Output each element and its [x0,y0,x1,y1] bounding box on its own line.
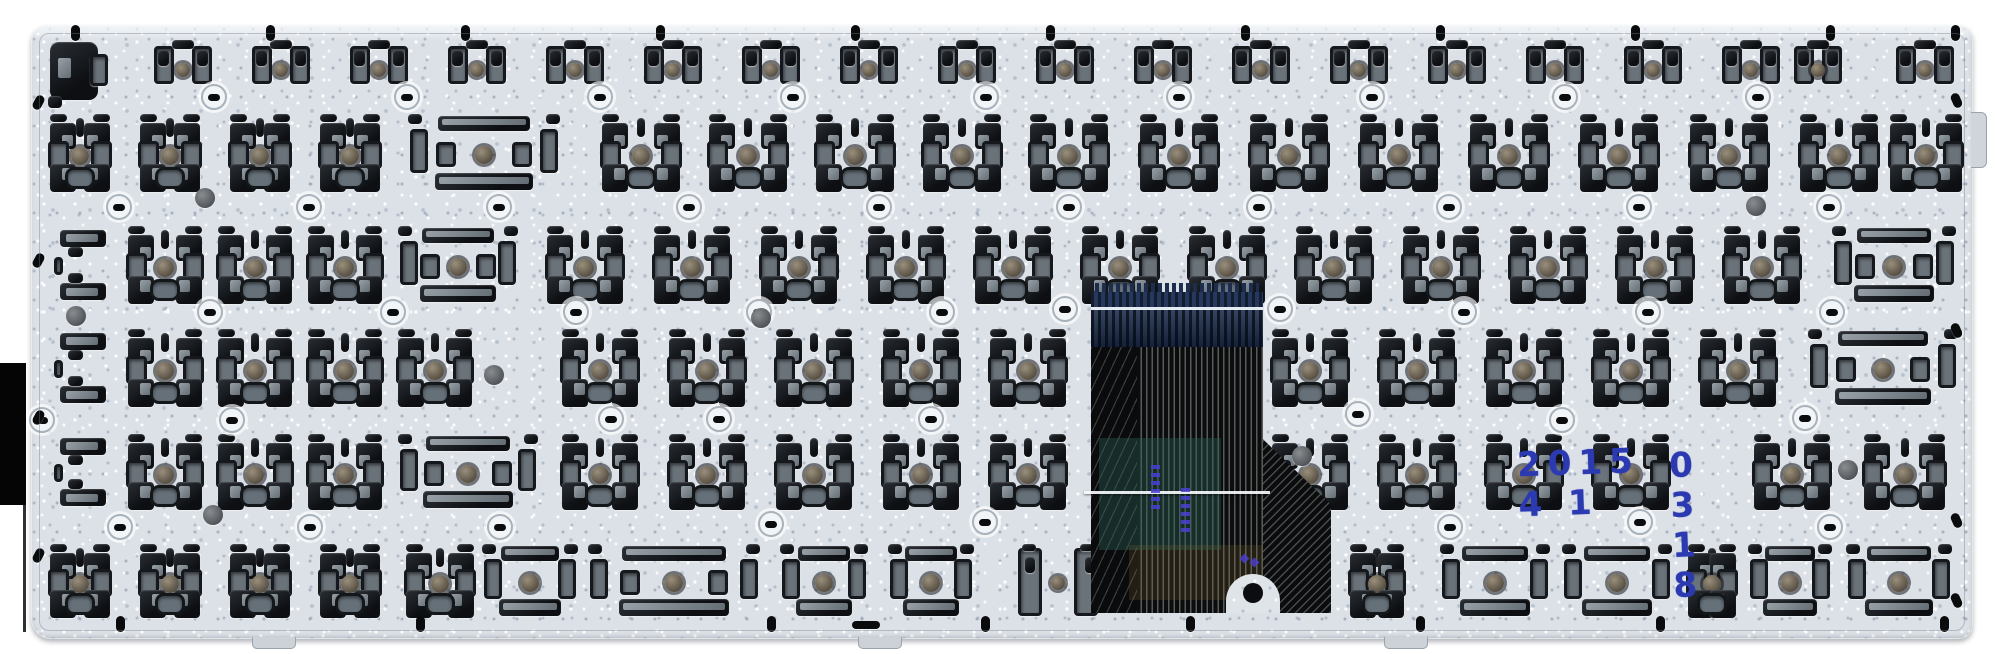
center-hole [862,63,876,77]
mount-slot [1690,164,1716,192]
rivet-dot [1292,446,1312,466]
key-mount-cluster [866,226,946,306]
mount-slot [1753,383,1764,395]
mount-slot [1751,114,1768,122]
mount-slot [1640,279,1670,301]
mount-slot [58,58,71,78]
mount-slot [1632,164,1658,192]
mount-slot [810,333,818,352]
mount-slot [663,114,680,122]
mount-slot [681,486,692,498]
mount-slot [709,164,735,192]
key-mount-cluster [1228,40,1294,90]
mount-slot [1522,164,1548,192]
mount-slot [1296,226,1313,234]
mount-slot [708,570,728,595]
mount-slot [1890,485,1920,507]
mount-slot [275,434,292,442]
mount-slot [744,118,752,137]
mount-slot [1745,168,1756,180]
mount-slot [1593,329,1610,337]
edge-hole [656,25,665,41]
key-mount-cluster [560,434,640,512]
screw-boss-slot [204,309,216,316]
mount-slot [155,167,185,189]
mount-slot [68,350,83,360]
key-mount-cluster [126,329,204,409]
mount-slot [158,50,169,66]
mount-slot [1750,559,1768,599]
mount-slot [1498,486,1509,498]
mount-slot [780,544,794,554]
key-mount-cluster [1591,329,1671,409]
screw-boss-ring [758,511,784,537]
mount-slot [596,438,604,457]
mount-slot [498,241,516,285]
mount-slot [784,279,814,301]
mount-slot [728,329,745,337]
mount-slot [155,593,185,615]
screw-boss-ring [297,514,323,540]
screw-boss-ring [1246,194,1272,220]
mount-slot [504,226,518,236]
key-mount-cluster [888,544,974,620]
date-stamp-right: 0 3 1 8 [1669,445,1710,606]
mount-slot [782,559,800,599]
screw-boss-ring [487,514,513,540]
rivet-dot [1746,196,1766,216]
mount-slot [1302,164,1328,192]
mount-slot [1812,559,1830,599]
mount-slot [1250,114,1267,122]
ribbon-print-mark [1181,488,1190,534]
rivet-dot [195,188,215,208]
mount-slot [1939,50,1950,66]
mount-slot [256,118,264,137]
key-mount-cluster [138,114,202,194]
mount-slot [1842,334,1924,340]
mount-slot [1938,344,1956,388]
mount-slot [1725,118,1733,137]
mount-slot [491,50,502,66]
mount-slot [1592,168,1603,180]
mount-slot [406,544,423,552]
mount-slot [1564,559,1582,599]
mount-slot [1846,544,1860,554]
mount-slot [50,544,67,552]
mount-slot [256,548,264,567]
mount-slot [66,234,98,242]
screw-boss-slot [1824,524,1836,531]
mount-slot [93,544,110,552]
mount-slot [128,226,145,234]
mount-slot [1013,382,1043,404]
mount-slot [150,382,180,404]
edge-hole [266,25,275,41]
mount-slot [1308,280,1319,292]
edge-hole [116,616,125,632]
mount-slot [933,482,959,510]
mount-slot [65,593,95,615]
center-hole [897,259,915,277]
mount-slot [423,491,513,508]
mount-slot [883,434,900,442]
mount-slot [1774,276,1800,304]
key-mount-cluster [738,40,804,90]
center-hole [1156,63,1170,77]
key-mount-cluster [1688,114,1770,194]
key-mount-cluster [1440,544,1550,620]
mount-slot [773,280,784,292]
center-hole [1874,361,1892,379]
mount-slot [802,549,847,555]
mount-slot [562,434,579,442]
mount-slot [1432,486,1443,498]
mount-slot [935,168,946,180]
mount-slot [883,329,900,337]
mount-slot [1040,379,1066,407]
mount-slot [574,486,585,498]
mount-slot [1360,164,1386,192]
mount-slot [438,116,529,131]
mount-slot [1350,544,1367,552]
mount-slot [66,288,98,296]
key-mount-cluster [667,329,747,409]
mount-slot [1855,254,1875,279]
mount-slot [1009,230,1017,249]
mount-slot [335,593,365,615]
mount-slot [1274,167,1304,189]
edge-hole [1436,25,1445,41]
mount-slot [505,549,555,555]
key-mount-cluster [1698,329,1778,409]
key-mount-cluster [973,226,1053,306]
mount-slot [1867,546,1931,561]
mount-slot [128,434,145,442]
mount-slot [1646,383,1657,395]
mount-slot [1482,168,1493,180]
mount-slot [1871,549,1927,555]
mount-slot [439,177,528,184]
mount-slot [1852,164,1878,192]
mount-slot [330,279,360,301]
mount-slot [449,383,460,395]
mount-slot [550,50,561,66]
screw-boss-ring [1437,514,1463,540]
mount-slot [295,50,306,66]
mount-slot [1464,603,1526,610]
mount-slot [612,379,638,407]
mount-slot [1360,114,1377,122]
mount-slot [1275,50,1286,66]
key-mount-cluster [228,114,292,194]
mount-slot [76,118,84,137]
mount-slot [60,489,106,506]
mount-slot [1429,379,1455,407]
mount-slot [1748,544,1762,554]
key-mount-cluster [1798,114,1880,194]
mount-slot [811,276,837,304]
mount-slot [1766,486,1777,498]
mount-slot [179,383,190,395]
edge-hole [31,252,46,269]
mount-slot [1798,50,1809,66]
center-hole [912,362,930,380]
mount-slot [1325,486,1336,498]
mount-slot [1584,546,1650,561]
mount-slot [269,383,280,395]
mount-slot [570,279,600,301]
mount-slot [1900,50,1911,66]
mount-slot [602,164,628,192]
left-edge-shadow [23,505,26,632]
mount-slot [48,96,62,108]
screw-boss-ring [197,299,223,325]
mount-slot [1642,40,1664,49]
key-mount-cluster [126,434,204,512]
mount-slot [66,494,98,502]
key-mount-cluster [398,434,538,512]
mount-slot [1536,379,1562,407]
mount-slot [600,280,611,292]
center-hole [1918,63,1932,77]
mount-slot [1415,168,1426,180]
center-hole [960,63,974,77]
screw-boss-ring [1056,194,1082,220]
screw-boss-slot [494,524,506,531]
key-mount-cluster [1832,226,1956,306]
mount-slot [954,559,972,599]
rivet-dot [484,365,504,385]
mount-slot [1509,382,1539,404]
mount-slot [703,438,711,457]
mount-slot [1861,231,1927,237]
edge-hole [1949,512,1963,529]
mount-slot [1362,593,1392,615]
mount-slot [1857,228,1931,243]
mount-slot [1531,114,1548,122]
mount-slot [1932,559,1950,599]
mount-slot [1192,164,1218,192]
mount-slot [230,544,247,552]
screw-boss-slot [1253,204,1265,211]
mount-slot [1349,280,1360,292]
mount-slot [1586,603,1648,610]
center-hole [591,466,609,484]
center-hole [470,63,484,77]
center-hole [1408,362,1426,380]
mount-slot [269,280,280,292]
key-mount-cluster [1326,40,1392,90]
mount-slot [906,485,936,507]
screw-boss-ring [973,84,999,110]
mount-slot [1091,114,1108,122]
screw-boss-slot [1752,94,1764,101]
mount-slot [1322,379,1348,407]
mount-slot [728,434,745,442]
mount-slot [1652,329,1669,337]
key-mount-cluster [126,226,204,306]
mount-slot [1615,118,1623,137]
mount-slot [669,434,686,442]
ribbon-tint-overlay [1099,438,1221,550]
mount-slot [161,438,169,457]
mount-slot [1440,544,1454,554]
mount-slot [981,50,992,66]
mount-slot [1628,50,1639,66]
mount-slot [1658,544,1672,554]
key-mount-cluster [1377,434,1457,512]
mount-slot [476,254,496,279]
mount-slot [1839,392,1927,399]
center-hole [1896,466,1914,484]
mount-slot [1013,485,1043,507]
center-hole [246,466,264,484]
mount-slot [240,382,270,404]
mount-slot [60,230,106,247]
mounting-tab [858,637,902,649]
key-mount-cluster [1424,40,1490,90]
mount-slot [269,486,280,498]
key-mount-cluster [54,329,112,409]
mount-slot [942,434,959,442]
mount-slot [719,379,745,407]
mount-slot [1627,333,1635,352]
center-hole [341,147,359,165]
mount-slot [978,168,989,180]
center-hole [632,147,650,165]
mount-slot [218,434,235,442]
center-hole [922,574,940,592]
mount-slot [776,329,793,337]
mount-slot [76,548,84,567]
rivet-dot [66,306,86,326]
mount-slot [1652,559,1670,599]
center-hole [1408,466,1426,484]
mount-slot [1562,544,1576,554]
screw-boss-ring [394,84,420,110]
center-hole [790,259,808,277]
mount-slot [795,230,803,249]
key-mount-cluster [774,329,854,409]
mount-slot [54,464,63,482]
mount-slot [840,167,870,189]
mount-slot [1331,434,1348,442]
mount-slot [161,230,169,249]
mount-slot [1629,280,1640,292]
center-hole [805,466,823,484]
edge-hole [416,616,425,632]
center-hole [336,362,354,380]
screw-boss-ring [1166,84,1192,110]
mount-slot [1676,226,1693,234]
mount-slot [704,276,730,304]
mount-slot [1432,50,1443,66]
mount-slot [359,383,370,395]
mount-slot [581,230,589,249]
mount-slot [1054,40,1076,49]
mount-slot [770,114,787,122]
rivet-dot [1838,460,1858,480]
mount-slot [1025,276,1051,304]
mount-slot [848,559,866,599]
mount-slot [1164,167,1194,189]
center-hole [156,466,174,484]
key-mount-cluster [1130,40,1196,90]
key-mount-cluster [881,329,961,409]
key-mount-cluster [1846,544,1952,620]
mount-slot [733,167,763,189]
mount-slot [1769,549,1811,555]
key-mount-cluster [988,329,1068,409]
mount-slot [799,485,829,507]
center-hole [176,63,190,77]
screw-boss-ring [486,194,512,220]
mount-slot [420,285,497,302]
screw-boss-ring [706,406,732,432]
center-hole [475,146,493,164]
mount-slot [1402,485,1432,507]
screw-boss-slot [208,94,220,101]
mount-slot [1747,279,1777,301]
key-mount-cluster [774,434,854,512]
mount-slot [574,383,585,395]
key-mount-cluster [1508,226,1588,306]
screw-boss-ring [1345,401,1371,427]
mount-slot [1494,167,1524,189]
screw-boss-slot [493,204,505,211]
mount-slot [681,383,692,395]
mount-slot [1024,333,1032,352]
mount-slot [1379,434,1396,442]
mount-slot [585,485,615,507]
mount-slot [1311,114,1328,122]
mount-slot [917,438,925,457]
key-mount-cluster [1248,114,1330,194]
key-mount-cluster [408,114,560,194]
mount-slot [820,226,837,234]
mount-slot [1616,382,1646,404]
screw-boss-slot [226,417,238,424]
mount-slot [648,50,659,66]
center-hole [1548,63,1562,77]
mount-slot [518,449,536,491]
edge-hole [1416,616,1425,632]
mount-slot [654,164,680,192]
mount-slot [657,168,668,180]
mount-slot [410,129,428,173]
mount-slot [503,603,556,610]
mount-slot [776,434,793,442]
mount-slot [150,279,180,301]
key-mount-cluster [934,40,1000,90]
screw-boss-ring [676,194,702,220]
mount-slot [1765,50,1776,66]
mount-slot [1530,50,1541,66]
screw-boss-slot [936,309,948,316]
mount-slot [1043,486,1054,498]
mount-slot [346,548,354,567]
left-black-object [0,363,26,505]
ribbon-crease-highlight [1084,491,1270,494]
center-hole [1610,147,1628,165]
mount-slot [363,544,380,552]
center-hole [71,147,89,165]
mount-slot [1348,40,1370,49]
mount-slot [1758,230,1766,249]
ribbon-blue-band [1091,292,1263,308]
mount-slot [1890,114,1907,122]
